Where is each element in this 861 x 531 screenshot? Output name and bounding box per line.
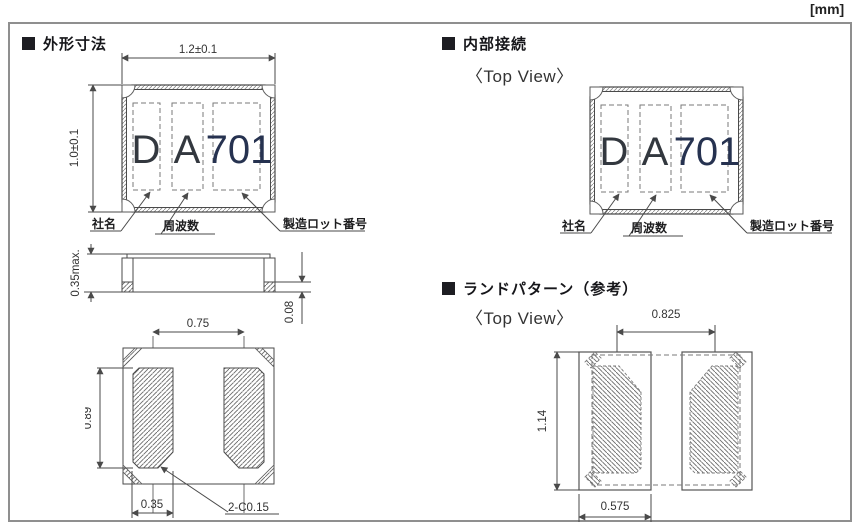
- section-title-internal: 内部接続: [463, 33, 527, 54]
- marking-company-char: D: [132, 128, 161, 172]
- dim-outline-height: [88, 85, 122, 212]
- package-side: [122, 254, 275, 292]
- label-company: 社名: [561, 218, 586, 233]
- label-frequency: 周波数: [631, 220, 668, 235]
- dim-label-terminal-length: 0.89: [85, 407, 94, 429]
- figure-internal-top-view: D A 701 社名 周波数 製造ロット番号: [545, 80, 840, 240]
- dim-label-outline-width: 1.2±0.1: [179, 44, 217, 56]
- dim-label-land-width: 0.575: [601, 501, 630, 513]
- label-frequency: 周波数: [163, 218, 200, 233]
- dim-land-length: [554, 352, 579, 490]
- figure-land-pattern: 0.825 1.14 0.575: [535, 300, 785, 530]
- dim-label-land-length: 1.14: [537, 409, 549, 432]
- figure-bottom-view: 0.75 0.89 0.35 2-C0.15: [85, 315, 330, 520]
- marking-type-char: A: [642, 130, 669, 174]
- dim-label-chamfer: 2-C0.15: [228, 502, 269, 514]
- terminal-footprints: [585, 352, 746, 487]
- terminal-pad-left: [133, 368, 173, 468]
- label-lot: 製造ロット番号: [282, 216, 367, 231]
- dim-thickness: [84, 244, 127, 302]
- dim-label-terminal-pitch: 0.75: [187, 318, 209, 330]
- label-lot: 製造ロット番号: [749, 218, 834, 233]
- section-marker-icon: [442, 282, 455, 295]
- terminal-pad-right: [224, 368, 264, 468]
- marking-company-char: D: [600, 130, 629, 174]
- lid: [127, 254, 270, 258]
- marking-code: 701: [674, 130, 741, 174]
- unit-label: [mm]: [810, 1, 844, 17]
- section-marker-icon: [442, 37, 455, 50]
- dim-land-pitch: [617, 325, 715, 352]
- figure-outline-top-view: 1.2±0.1 1.0±0.1 D A 701 社名 周波数 製造ロット番号: [20, 38, 380, 238]
- body: [122, 258, 275, 292]
- terminal-plating-left: [122, 282, 133, 292]
- dim-label-outline-height: 1.0±0.1: [69, 129, 81, 167]
- dim-outline-width: [122, 53, 275, 84]
- section-header-internal: 内部接続: [442, 33, 527, 54]
- dim-label-land-pitch: 0.825: [652, 309, 681, 321]
- label-company: 社名: [91, 216, 116, 231]
- section-title-land: ランドパターン（参考）: [463, 278, 638, 299]
- terminal-plating-right: [264, 282, 275, 292]
- dim-label-thickness: 0.35max.: [70, 249, 82, 296]
- marking-code: 701: [206, 128, 273, 172]
- dim-label-terminal-width: 0.35: [141, 499, 163, 511]
- section-header-land: ランドパターン（参考）: [442, 278, 638, 299]
- marking-type-char: A: [174, 128, 201, 172]
